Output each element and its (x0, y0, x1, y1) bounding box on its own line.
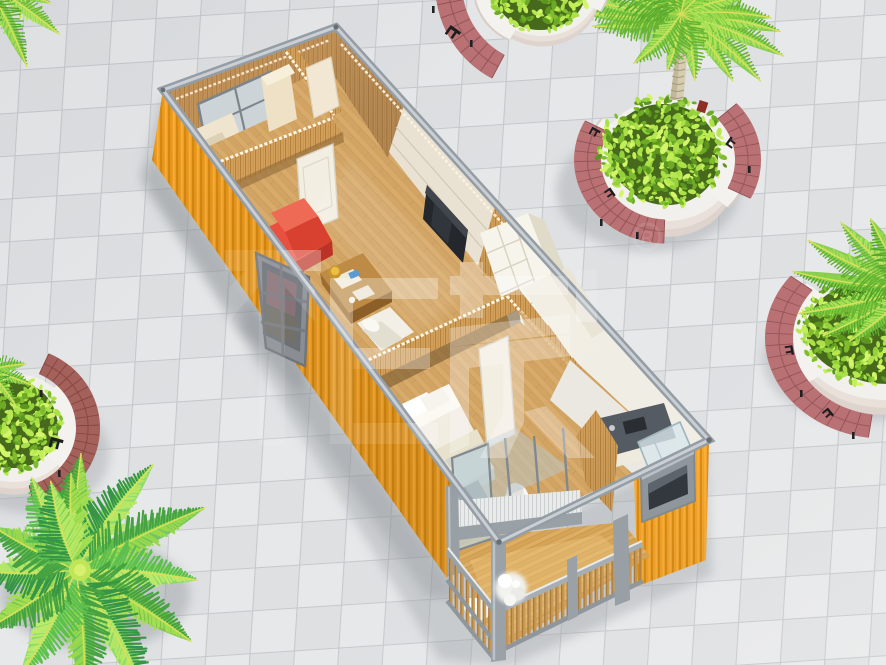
svg-text:R: R (641, 228, 654, 248)
